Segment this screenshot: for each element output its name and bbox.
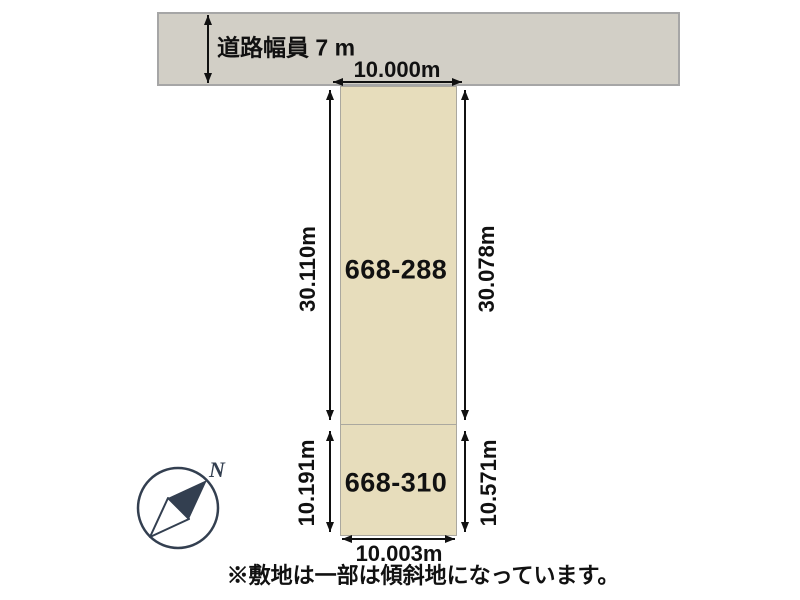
dimension-annotations (0, 0, 800, 600)
upper-right-depth-label: 30.078m (476, 226, 498, 313)
parcel-upper-id: 668-288 (345, 257, 448, 284)
lower-left-depth-label: 10.191m (296, 440, 318, 527)
land-plot-diagram: 道路幅員 7 m 10.000m 668-288 668-310 30.110m… (0, 0, 800, 600)
lower-right-depth-label: 10.571m (478, 440, 500, 527)
parcel-lower-id: 668-310 (345, 470, 448, 497)
bottom-width-label: 10.003m (356, 543, 443, 565)
road-width-label: 道路幅員 7 m (217, 37, 355, 60)
top-width-label: 10.000m (354, 59, 441, 81)
slope-note: ※敷地は一部は傾斜地になっています。 (227, 565, 620, 587)
upper-left-depth-label: 30.110m (297, 226, 319, 312)
compass-icon (138, 468, 218, 548)
compass-north-label: N (209, 459, 225, 481)
